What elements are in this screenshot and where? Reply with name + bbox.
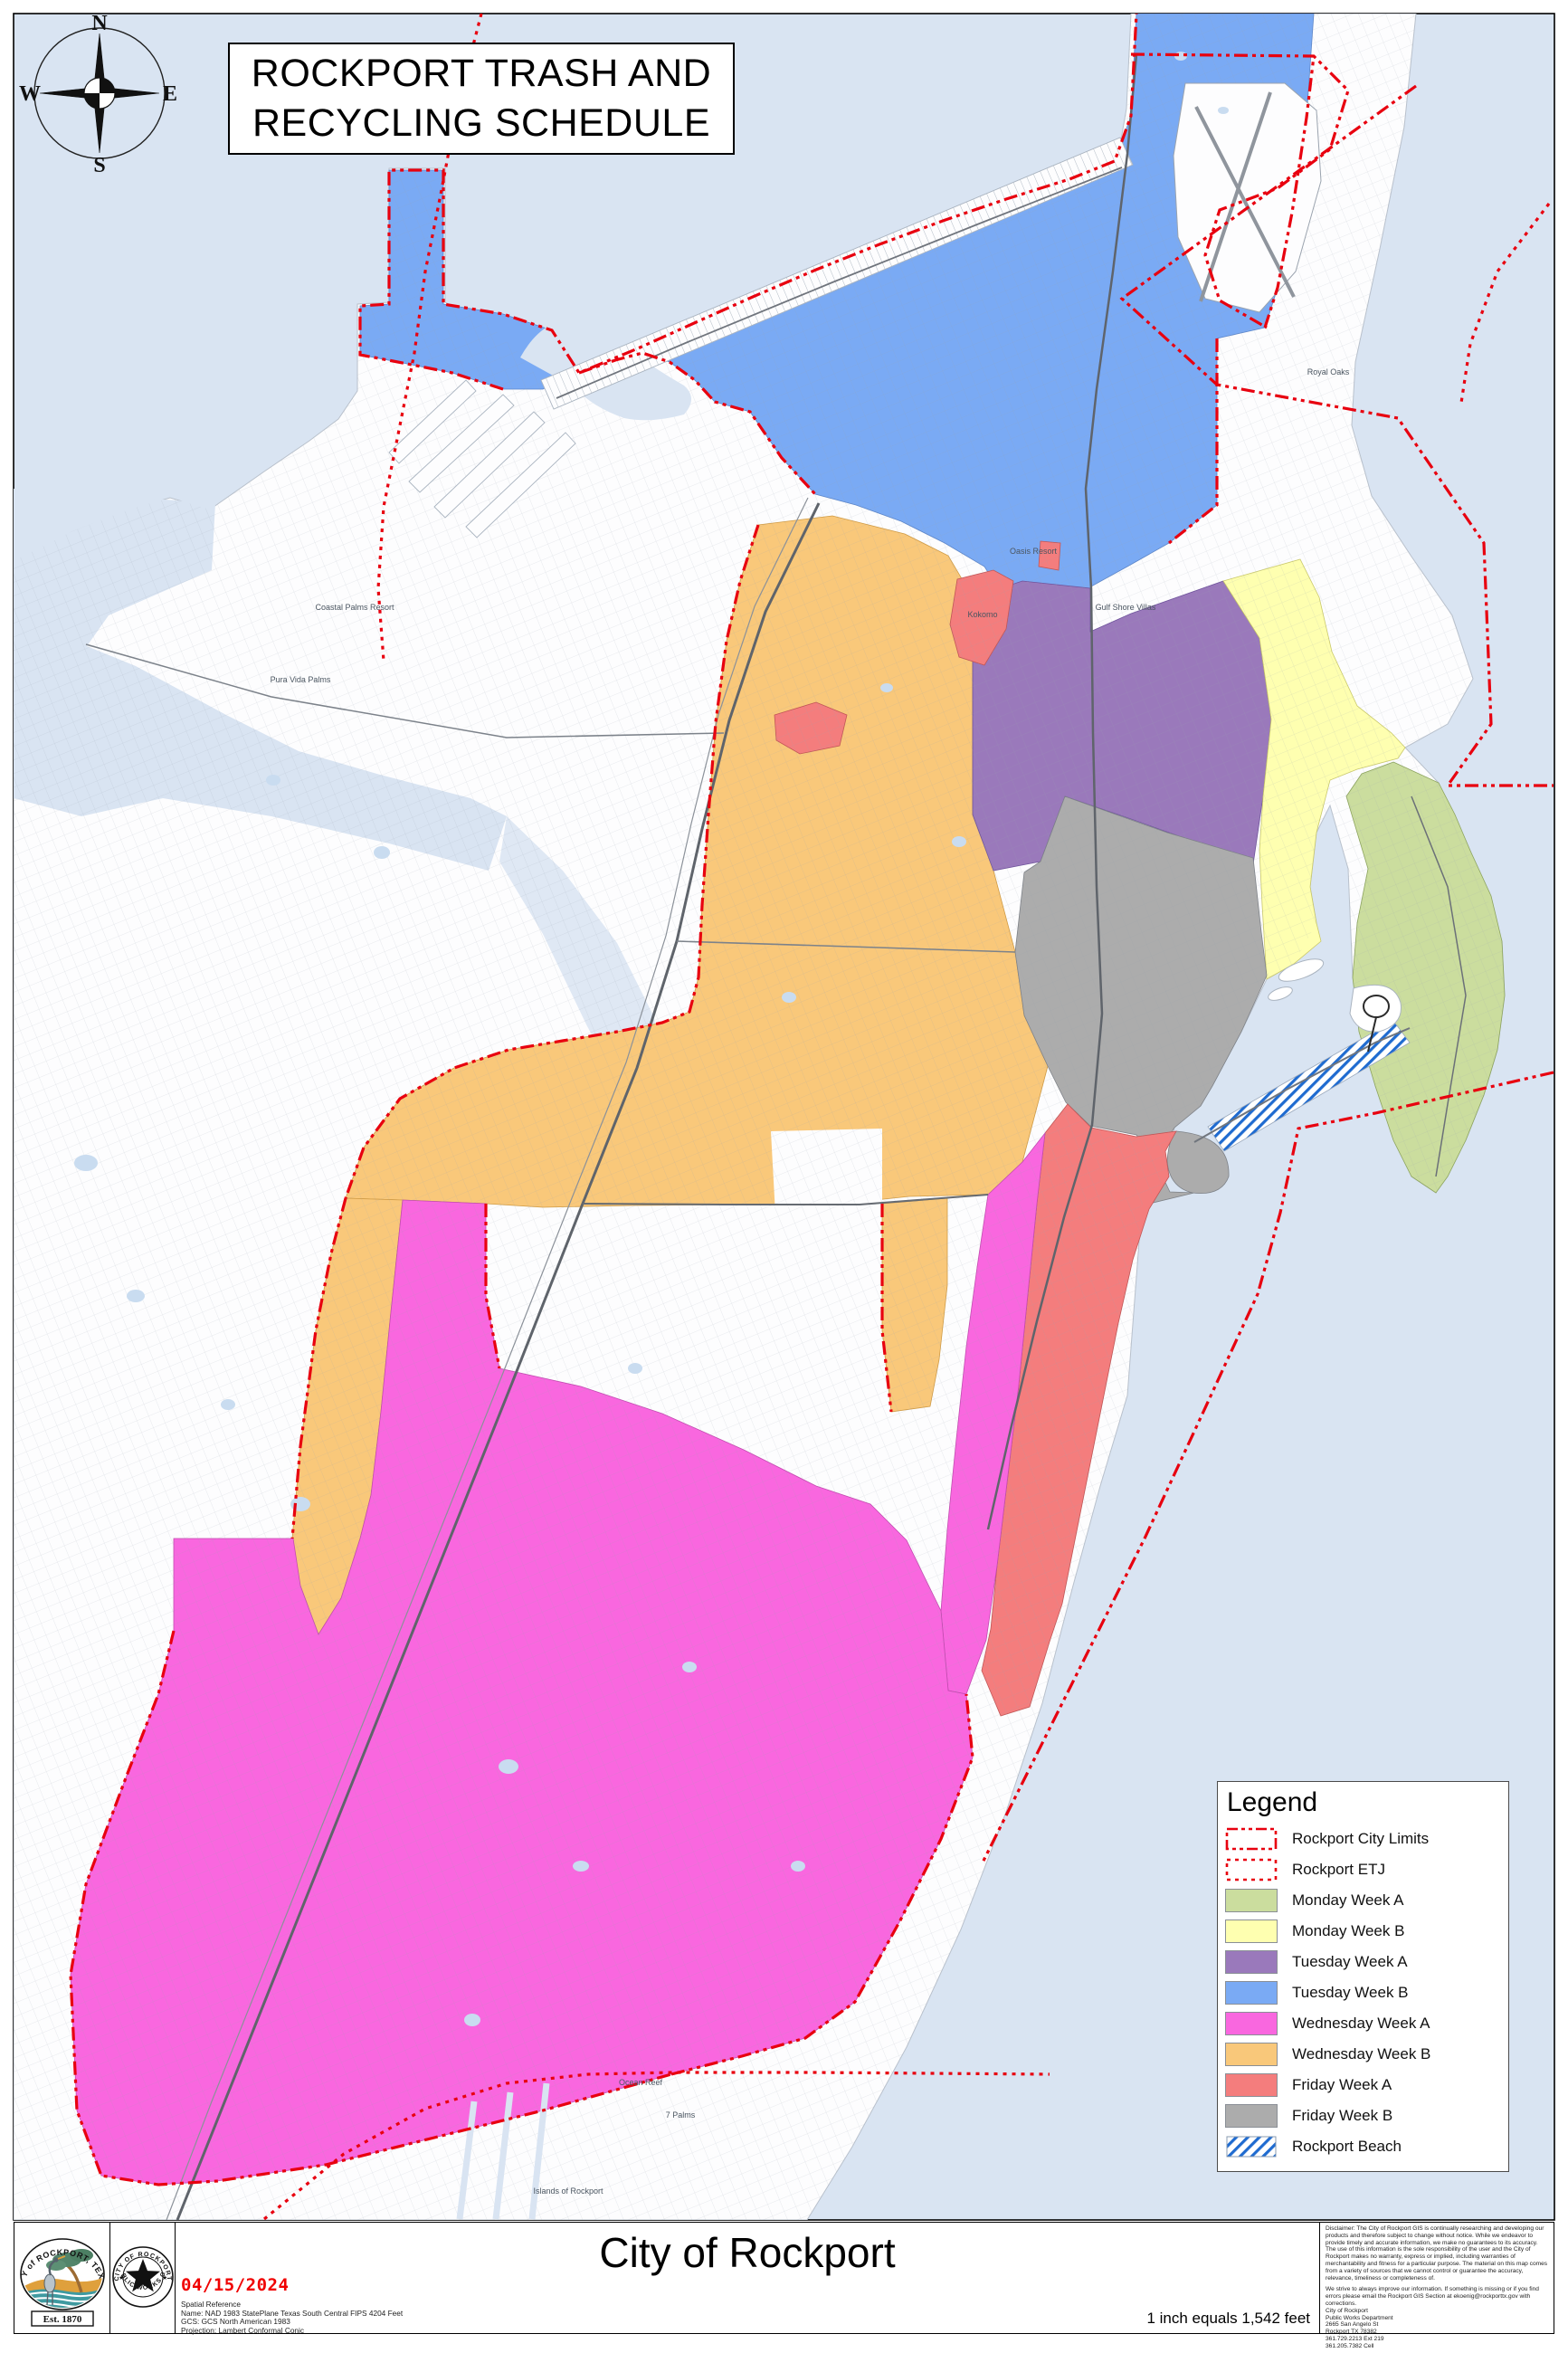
disclaimer-paragraph-2: We strive to always improve our informat… [1326,2286,1548,2307]
legend-item-monday-b: Monday Week B [1225,1916,1499,1947]
legend-item-rockport-beach: Rockport Beach [1225,2131,1499,2162]
compass-e: E [163,82,177,106]
city-limits-swatch [1225,1827,1278,1851]
city-of-rockport-seal: CITY of ROCKPORT, TEXAS Est. 1870 [14,2223,110,2333]
footer-main-panel: City of Rockport 04/15/2024 Spatial Refe… [176,2223,1320,2333]
label-kokomo: Kokomo [967,610,997,619]
tuesday-b-swatch [1225,1981,1278,2005]
disclaimer-panel: Disclaimer: The City of Rockport GIS is … [1320,2223,1554,2333]
legend-item-tuesday-b: Tuesday Week B [1225,1977,1499,2008]
compass-w: W [19,82,41,106]
wednesday-a-swatch [1225,2012,1278,2035]
label-gulf-shore-villas: Gulf Shore Villas [1096,603,1156,612]
legend-item-wednesday-b: Wednesday Week B [1225,2039,1499,2070]
star-left-icon: ★ [119,2274,124,2282]
legend-title: Legend [1227,1787,1499,1818]
wednesday-b-swatch [1225,2043,1278,2066]
star-right-icon: ★ [162,2274,167,2282]
tuesday-a-swatch [1225,1950,1278,1974]
compass-s: S [93,154,105,177]
scale-text: 1 inch equals 1,542 feet [1146,2310,1310,2328]
footer-city-title: City of Rockport [176,2228,1319,2277]
compass-n: N [91,12,108,35]
footer: CITY of ROCKPORT, TEXAS Est. 1870 CITY O… [14,2222,1554,2334]
beach-swatch [1225,2135,1278,2158]
friday-b-swatch [1225,2104,1278,2128]
label-coastal-palms: Coastal Palms Resort [315,603,394,612]
disclaimer-paragraph-1: Disclaimer: The City of Rockport GIS is … [1326,2225,1548,2282]
etj-swatch [1225,1858,1278,1881]
label-pura-vida: Pura Vida Palms [271,675,331,684]
star-seal: CITY OF ROCKPORT PUBLIC WORKS GIS ★ ★ [111,2224,175,2332]
friday-a-swatch [1225,2073,1278,2097]
spatial-reference: Spatial Reference Name: NAD 1983 StatePl… [181,2301,403,2336]
map-title-line2: RECYCLING SCHEDULE [252,99,710,148]
legend-item-wednesday-a: Wednesday Week A [1225,2008,1499,2039]
label-seven-palms: 7 Palms [666,2110,696,2120]
legend-item-city-limits: Rockport City Limits [1225,1824,1499,1854]
legend-item-etj: Rockport ETJ [1225,1854,1499,1885]
monday-a-swatch [1225,1889,1278,1912]
legend-item-friday-a: Friday Week A [1225,2070,1499,2101]
legend-item-friday-b: Friday Week B [1225,2101,1499,2131]
contact-address: City of Rockport Public Works Department… [1326,2308,1548,2350]
label-royal-oaks: Royal Oaks [1307,367,1350,376]
heron-logo: CITY of ROCKPORT, TEXAS Est. 1870 [16,2224,109,2332]
legend: Legend Rockport City Limits Rockport ETJ… [1217,1781,1509,2172]
map-page: Oasis Resort Gulf Shore Villas Kokomo Ro… [0,0,1568,2353]
label-islands-of-rockport: Islands of Rockport [533,2186,603,2196]
public-works-gis-seal: CITY OF ROCKPORT PUBLIC WORKS GIS ★ ★ [110,2223,176,2333]
monday-b-swatch [1225,1920,1278,1943]
legend-item-monday-a: Monday Week A [1225,1885,1499,1916]
city-seal-banner: Est. 1870 [43,2314,81,2325]
map-title-line1: ROCKPORT TRASH AND [252,49,711,99]
map-title-box: ROCKPORT TRASH AND RECYCLING SCHEDULE [228,43,735,155]
label-oasis-resort: Oasis Resort [1010,547,1058,556]
label-ocean-reef: Ocean Reef [619,2078,663,2087]
legend-item-tuesday-a: Tuesday Week A [1225,1947,1499,1977]
footer-date: 04/15/2024 [181,2275,289,2295]
